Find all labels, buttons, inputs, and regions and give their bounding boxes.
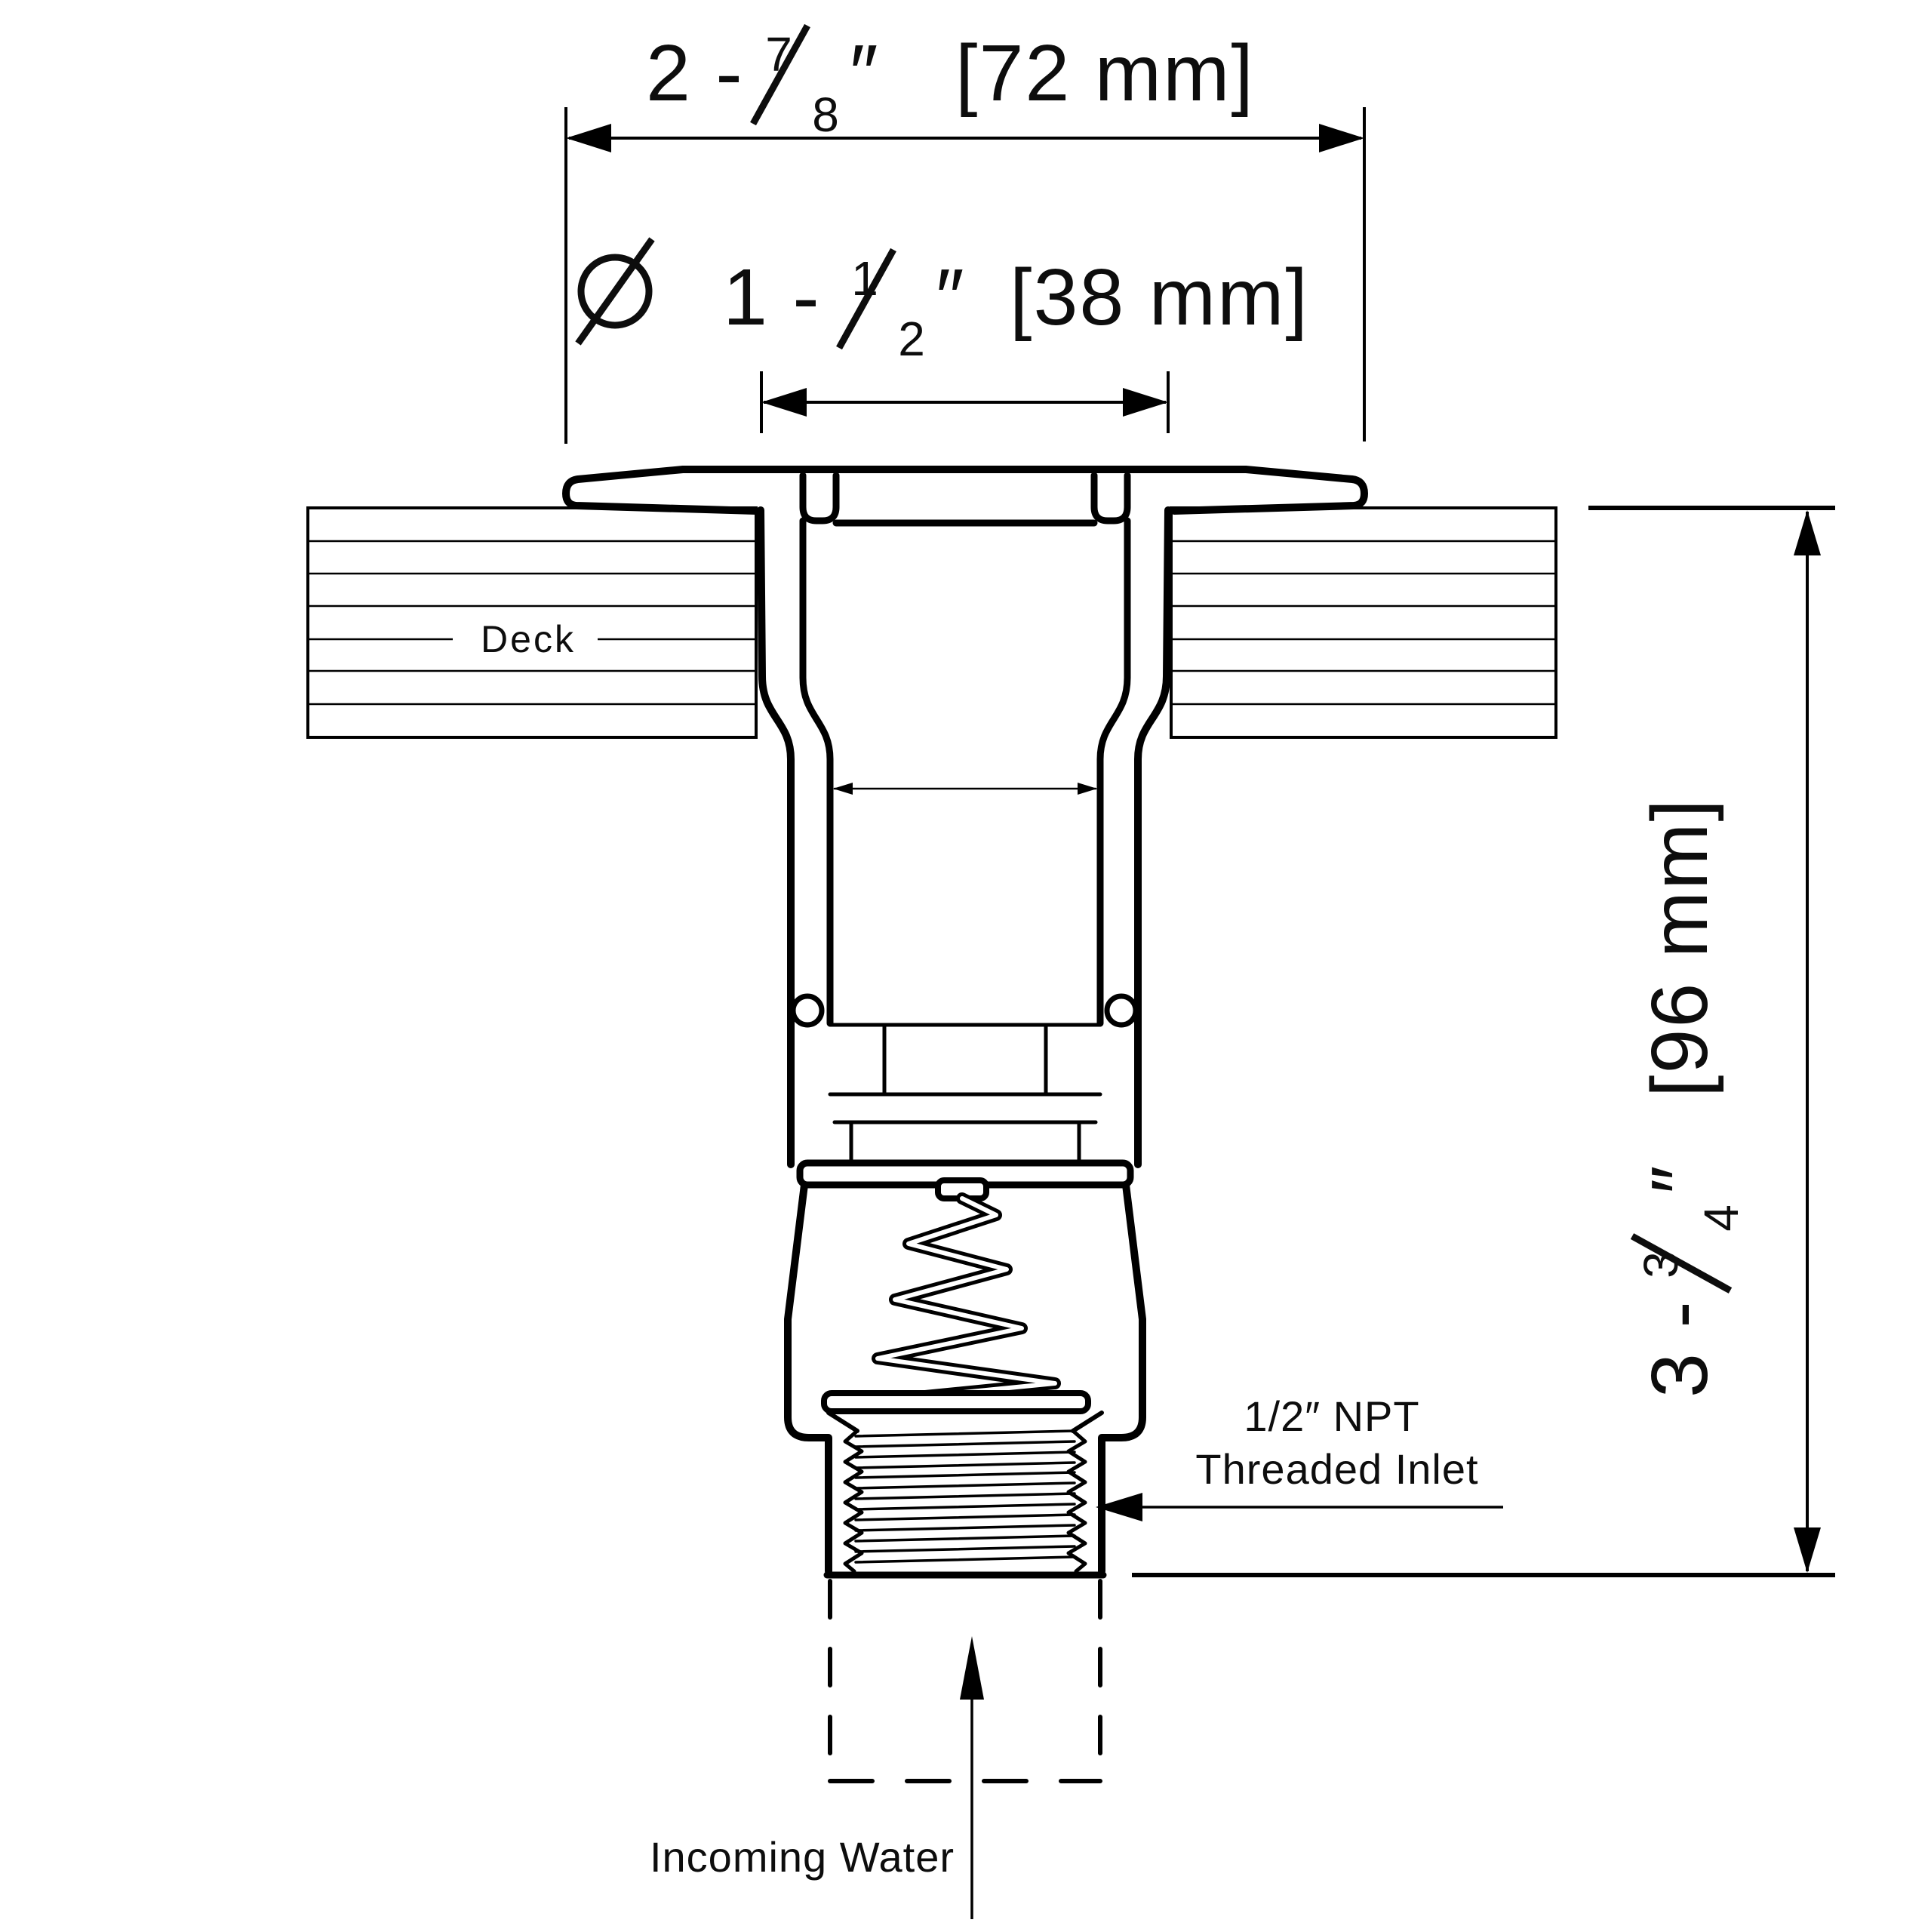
tube-inner-wall-right	[1100, 521, 1127, 1023]
deck-fitting-drawing: 2 - 7 8 ″ [72 mm] 1 - 1 2 ″ [38 mm] Deck	[0, 0, 1931, 1932]
dim-width-unit: ″	[850, 29, 880, 118]
dim-height-metric: [96 mm]	[1635, 798, 1724, 1097]
snap-ring-right-icon	[1107, 996, 1136, 1025]
incoming-water-callout: Incoming Water	[650, 1636, 984, 1919]
npt-label-line2: Threaded Inlet	[1195, 1445, 1478, 1493]
cap-lip-right	[1094, 475, 1127, 521]
npt-label-line1: 1/2″ NPT	[1244, 1392, 1419, 1440]
arrowhead-left-icon	[566, 124, 611, 152]
arrowhead-left-icon	[761, 388, 807, 417]
snap-ring-left-icon	[793, 996, 822, 1025]
flow-arrowhead-up-icon	[960, 1636, 984, 1700]
cap-lip-left	[803, 475, 836, 521]
deck-label: Deck	[481, 618, 576, 660]
tube-outer-wall-right	[1138, 510, 1168, 1164]
dim-dia-metric: [38 mm]	[1010, 253, 1309, 342]
deck-section-right	[1171, 508, 1556, 737]
bore-reference-line	[833, 783, 1097, 795]
dim-dia-whole: 1 -	[723, 253, 821, 342]
cup-wall-left	[788, 1185, 829, 1571]
fitting-body	[566, 469, 1364, 1781]
arrowhead-right-icon	[1123, 388, 1168, 417]
dim-width-metric: [72 mm]	[955, 29, 1255, 118]
dimension-flange-width-text: 2 - 7 8 ″ [72 mm]	[646, 26, 1255, 142]
npt-callout: 1/2″ NPT Threaded Inlet	[1096, 1392, 1503, 1521]
arrowhead-right-icon	[1319, 124, 1364, 152]
dim-width-whole: 2 -	[646, 29, 744, 118]
valve-cartridge	[830, 1025, 1100, 1164]
arrowhead-up-icon	[1794, 510, 1821, 555]
diameter-symbol-icon	[578, 239, 652, 343]
tube-inner-wall-left	[803, 521, 830, 1023]
flange-cap-outline	[566, 469, 1364, 511]
arrowhead-down-icon	[1794, 1527, 1821, 1573]
dim-height-whole: 3 -	[1635, 1300, 1724, 1398]
dimension-height-text: 3 - 3 4 ″ [96 mm]	[1632, 798, 1748, 1398]
check-valve-spring	[824, 1180, 1088, 1411]
technical-drawing-page: 2 - 7 8 ″ [72 mm] 1 - 1 2 ″ [38 mm] Deck	[0, 0, 1931, 1932]
dim-dia-denominator: 2	[898, 312, 925, 366]
dim-width-denominator: 8	[812, 88, 839, 142]
thread-crest-left	[845, 1431, 862, 1571]
dimension-hole-diameter: 1 - 1 2 ″ [38 mm]	[578, 239, 1309, 433]
dimension-height	[1132, 508, 1835, 1575]
incoming-water-label: Incoming Water	[650, 1833, 955, 1881]
dim-height-denominator: 4	[1694, 1204, 1748, 1232]
dim-height-unit: ″	[1635, 1164, 1724, 1194]
dim-dia-unit: ″	[936, 253, 966, 342]
tube-outer-wall-left	[761, 510, 791, 1164]
npt-threads	[829, 1413, 1102, 1571]
